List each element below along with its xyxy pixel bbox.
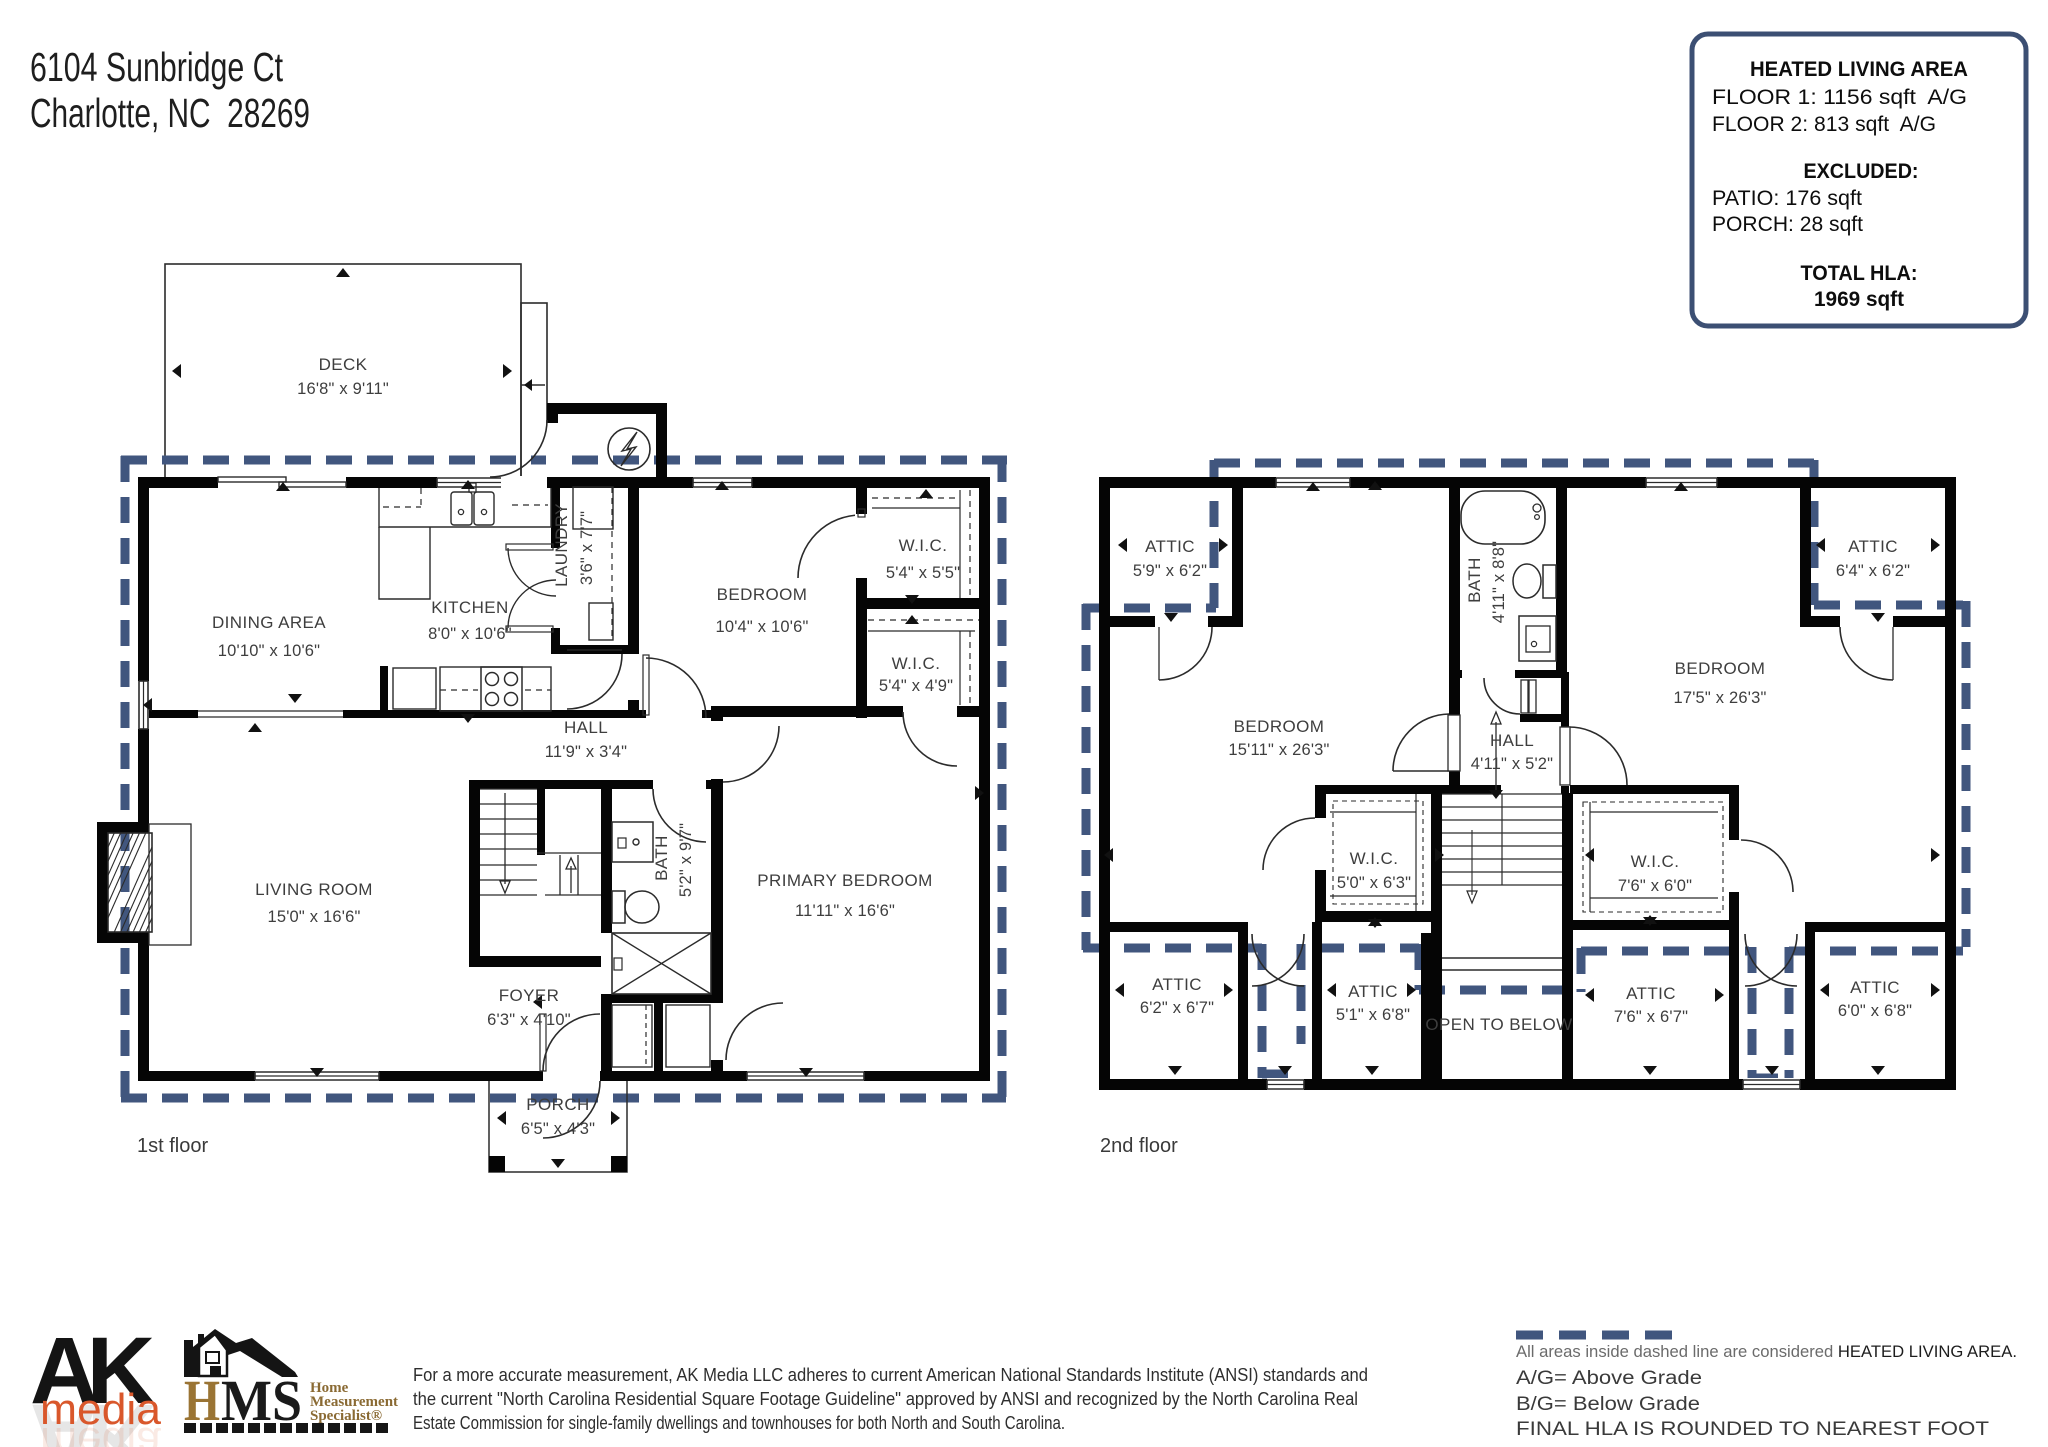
- svg-text:6'2" x 6'7": 6'2" x 6'7": [1140, 999, 1214, 1017]
- svg-text:ATTIC: ATTIC: [1850, 978, 1900, 997]
- svg-text:ATTIC: ATTIC: [1348, 982, 1398, 1001]
- svg-text:FINAL HLA IS ROUNDED TO NEARES: FINAL HLA IS ROUNDED TO NEAREST FOOT: [1516, 1419, 1989, 1440]
- svg-text:Specialist®: Specialist®: [310, 1408, 382, 1424]
- svg-text:FLOOR 1: 1156 sqft A/G: FLOOR 1: 1156 sqft A/G: [1712, 86, 1967, 109]
- svg-text:PRIMARY BEDROOM: PRIMARY BEDROOM: [757, 871, 932, 890]
- svg-text:7'6" x 6'7": 7'6" x 6'7": [1614, 1008, 1688, 1026]
- svg-text:DECK: DECK: [319, 355, 368, 374]
- svg-text:KITCHEN: KITCHEN: [431, 598, 508, 617]
- svg-text:3'6" x 7'7": 3'6" x 7'7": [578, 511, 596, 585]
- svg-text:5'4" x 4'9": 5'4" x 4'9": [879, 677, 953, 695]
- svg-text:16'8" x 9'11": 16'8" x 9'11": [297, 380, 389, 398]
- svg-text:B/G= Below Grade: B/G= Below Grade: [1516, 1394, 1700, 1415]
- svg-text:All areas inside dashed line a: All areas inside dashed line are conside…: [1516, 1342, 2017, 1361]
- svg-text:ATTIC: ATTIC: [1626, 984, 1676, 1003]
- svg-text:5'9" x 6'2": 5'9" x 6'2": [1133, 562, 1207, 580]
- svg-text:5'4" x 5'5": 5'4" x 5'5": [886, 564, 960, 582]
- svg-text:17'5" x 26'3": 17'5" x 26'3": [1673, 689, 1766, 707]
- svg-text:EXCLUDED:: EXCLUDED:: [1804, 159, 1919, 183]
- svg-text:15'0" x 16'6": 15'0" x 16'6": [267, 908, 360, 926]
- svg-text:4'11" x 8'8": 4'11" x 8'8": [1490, 541, 1508, 624]
- svg-text:HEATED LIVING AREA: HEATED LIVING AREA: [1750, 57, 1968, 81]
- svg-text:FOYER: FOYER: [499, 986, 560, 1005]
- svg-text:8'0" x 10'6": 8'0" x 10'6": [428, 625, 512, 643]
- svg-text:ATTIC: ATTIC: [1848, 537, 1898, 556]
- svg-text:6'3" x 4'10": 6'3" x 4'10": [487, 1011, 571, 1029]
- svg-text:FLOOR 2: 813 sqft A/G: FLOOR 2: 813 sqft A/G: [1712, 113, 1936, 136]
- svg-text:6'0" x 6'8": 6'0" x 6'8": [1838, 1002, 1912, 1020]
- svg-text:TOTAL HLA:: TOTAL HLA:: [1801, 261, 1918, 285]
- svg-text:5'0" x 6'3": 5'0" x 6'3": [1337, 874, 1411, 892]
- svg-text:BEDROOM: BEDROOM: [717, 585, 808, 604]
- svg-text:DINING AREA: DINING AREA: [212, 613, 326, 632]
- svg-text:Charlotte, NC 28269: Charlotte, NC 28269: [30, 90, 310, 136]
- svg-text:11'9" x 3'4": 11'9" x 3'4": [545, 743, 628, 761]
- svg-text:6'5" x 4'3": 6'5" x 4'3": [521, 1120, 595, 1138]
- svg-text:BEDROOM: BEDROOM: [1234, 717, 1325, 736]
- svg-text:LIVING ROOM: LIVING ROOM: [255, 880, 373, 899]
- svg-text:For a more accurate measuremen: For a more accurate measurement, AK Medi…: [413, 1364, 1368, 1385]
- svg-text:BEDROOM: BEDROOM: [1675, 659, 1766, 678]
- svg-text:PORCH: PORCH: [526, 1095, 589, 1114]
- svg-text:media: media: [40, 1418, 162, 1447]
- svg-text:W.I.C.: W.I.C.: [1350, 849, 1399, 868]
- svg-text:6104 Sunbridge Ct: 6104 Sunbridge Ct: [30, 44, 283, 90]
- svg-text:10'10" x 10'6": 10'10" x 10'6": [218, 642, 320, 660]
- svg-text:PORCH: 28 sqft: PORCH: 28 sqft: [1712, 213, 1863, 236]
- svg-text:W.I.C.: W.I.C.: [899, 536, 948, 555]
- svg-text:ATTIC: ATTIC: [1152, 975, 1202, 994]
- svg-text:11'11" x 16'6": 11'11" x 16'6": [795, 902, 895, 920]
- svg-text:W.I.C.: W.I.C.: [1631, 852, 1680, 871]
- svg-text:A/G= Above Grade: A/G= Above Grade: [1516, 1368, 1702, 1389]
- svg-text:2nd floor: 2nd floor: [1100, 1135, 1178, 1157]
- svg-text:15'11" x 26'3": 15'11" x 26'3": [1228, 741, 1329, 759]
- svg-text:10'4" x 10'6": 10'4" x 10'6": [715, 618, 808, 636]
- svg-text:5'2" x 9'7": 5'2" x 9'7": [677, 823, 695, 897]
- svg-text:the current "North Carolina Re: the current "North Carolina Residential …: [413, 1388, 1358, 1409]
- svg-text:4'11" x 5'2": 4'11" x 5'2": [1471, 755, 1554, 773]
- svg-text:7'6" x 6'0": 7'6" x 6'0": [1618, 877, 1692, 895]
- svg-text:BATH: BATH: [652, 835, 671, 881]
- svg-text:BATH: BATH: [1465, 557, 1484, 603]
- svg-text:HALL: HALL: [564, 718, 608, 737]
- svg-text:Estate Commission for single-f: Estate Commission for single-family dwel…: [413, 1412, 1065, 1433]
- svg-text:HALL: HALL: [1490, 731, 1534, 750]
- svg-text:ATTIC: ATTIC: [1145, 537, 1195, 556]
- svg-text:LAUNDRY: LAUNDRY: [552, 503, 571, 587]
- svg-text:5'1" x 6'8": 5'1" x 6'8": [1336, 1006, 1410, 1024]
- svg-text:1969 sqft: 1969 sqft: [1814, 287, 1904, 311]
- svg-text:PATIO: 176 sqft: PATIO: 176 sqft: [1712, 187, 1862, 210]
- svg-text:1st floor: 1st floor: [137, 1135, 208, 1157]
- svg-text:W.I.C.: W.I.C.: [892, 654, 941, 673]
- svg-text:OPEN TO BELOW: OPEN TO BELOW: [1425, 1015, 1572, 1034]
- svg-text:6'4" x 6'2": 6'4" x 6'2": [1836, 562, 1910, 580]
